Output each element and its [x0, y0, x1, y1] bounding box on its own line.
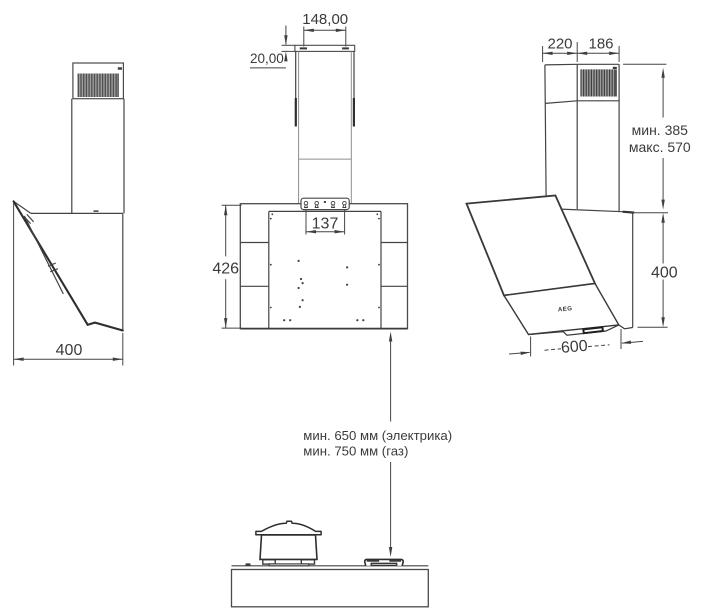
svg-text:20,00: 20,00: [250, 51, 284, 66]
svg-text:220: 220: [547, 36, 572, 53]
svg-text:мин. 750 мм (газ): мин. 750 мм (газ): [303, 443, 408, 458]
svg-text:AEG: AEG: [558, 305, 573, 313]
svg-text:400: 400: [56, 342, 83, 359]
svg-text:макс. 570: макс. 570: [629, 139, 691, 155]
svg-text:426: 426: [212, 261, 239, 278]
svg-text:148,00: 148,00: [302, 11, 348, 28]
svg-text:мин. 385: мин. 385: [632, 122, 689, 138]
svg-text:186: 186: [588, 36, 613, 53]
svg-text:600: 600: [560, 338, 588, 357]
svg-text:137: 137: [312, 215, 339, 232]
svg-text:400: 400: [651, 264, 678, 281]
svg-text:мин. 650 мм (электрика): мин. 650 мм (электрика): [303, 428, 452, 443]
